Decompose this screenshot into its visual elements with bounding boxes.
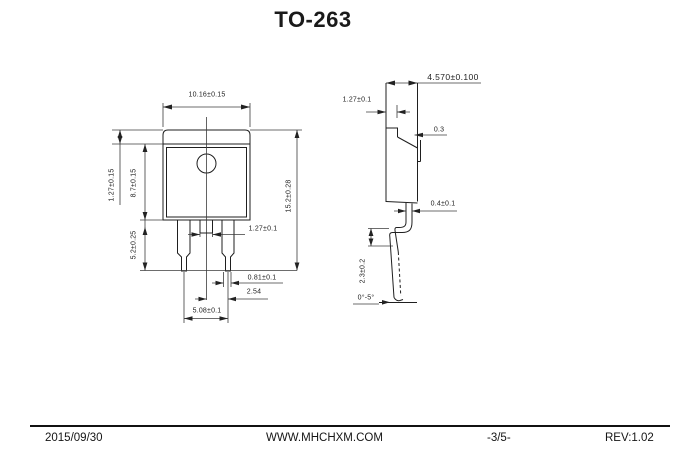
dim-outer-lead-span: 5.08±0.1: [193, 308, 222, 315]
side-view-drawing: [353, 81, 481, 305]
dim-body-thickness: 4.570±0.100: [427, 73, 479, 82]
dim-tab-offset: 0.3: [434, 127, 444, 134]
dim-body-width: 10.16±0.15: [189, 92, 226, 99]
footer-website: WWW.MHCHXM.COM: [266, 432, 383, 444]
footer-page-number: -3/5-: [487, 432, 511, 444]
front-view-drawing: [112, 103, 302, 323]
dim-side-tab-thickness: 1.27±0.1: [343, 97, 372, 104]
dim-lead-thickness: 0.4±0.1: [431, 201, 456, 208]
dim-total-height: 15.2±0.28: [286, 180, 293, 213]
dim-lead-pitch: 2.54: [247, 289, 261, 296]
dim-lead-angle: 0°-5°: [358, 295, 375, 302]
dim-lead-length: 5.2±0.25: [131, 231, 138, 260]
dim-center-tab-width: 1.27±0.1: [249, 226, 278, 233]
footer-date: 2015/09/30: [45, 432, 103, 444]
datasheet-page: TO-263: [0, 0, 700, 466]
dim-body-height: 8.7±0.15: [131, 169, 138, 198]
dim-lead-width: 0.81±0.1: [248, 275, 277, 282]
footer-divider: [30, 425, 670, 427]
dim-tab-height: 1.27±0.15: [109, 169, 116, 202]
package-outline-drawing: [0, 0, 700, 466]
dim-lead-height: 2.3±0.2: [360, 259, 367, 284]
footer-revision: REV:1.02: [605, 432, 654, 444]
